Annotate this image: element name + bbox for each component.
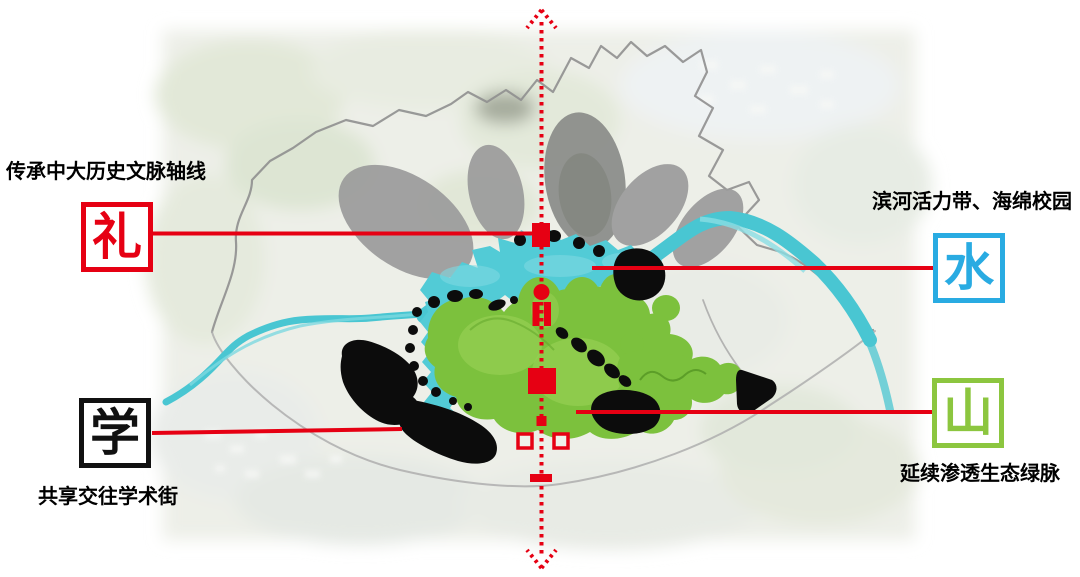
concept-char-li: 礼: [92, 212, 142, 262]
planning-diagram: 传承中大历史文脉轴线 滨河活力带、海绵校园 共享交往学术街 延续渗透生态绿脉 礼…: [0, 0, 1080, 577]
concept-char-shan: 山: [943, 388, 993, 438]
concept-char-xue: 学: [90, 408, 140, 458]
concept-box-li: 礼: [81, 202, 153, 272]
axis-bar-marker: [530, 474, 552, 482]
axis-core-square: [528, 368, 556, 394]
axis-gate-marker: [532, 223, 550, 247]
concept-char-shui: 水: [944, 243, 994, 293]
axis-hollow-square-left: [518, 434, 532, 448]
concept-box-xue: 学: [79, 398, 151, 468]
annotation-academic-street: 共享交往学术街: [38, 486, 178, 508]
axis-hollow-square-right: [554, 434, 568, 448]
annotation-heritage-axis: 传承中大历史文脉轴线: [6, 161, 206, 183]
concept-box-shan: 山: [932, 378, 1004, 448]
annotation-river-belt: 滨河活力带、海绵校园: [872, 191, 1072, 213]
axis-node-marker: [534, 284, 550, 300]
concept-box-shui: 水: [933, 233, 1005, 303]
annotation-eco-green-veins: 延续渗透生态绿脉: [900, 463, 1060, 485]
